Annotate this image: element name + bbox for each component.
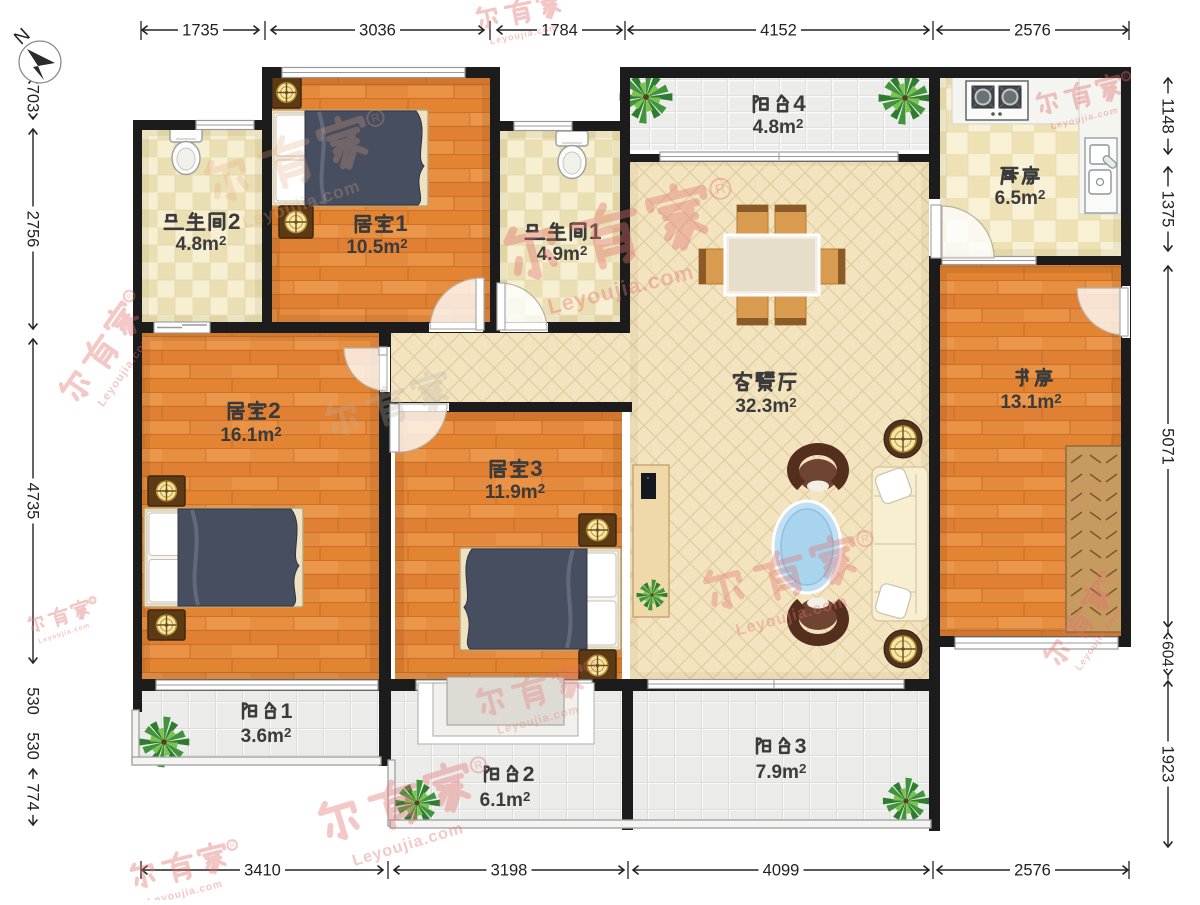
svg-text:774: 774 — [23, 783, 41, 811]
svg-text:2576: 2576 — [1014, 22, 1051, 40]
svg-text:13.1m2: 13.1m2 — [1000, 391, 1061, 413]
svg-text:1923: 1923 — [1158, 746, 1176, 783]
svg-text:2756: 2756 — [23, 211, 41, 248]
svg-text:3036: 3036 — [359, 22, 396, 40]
svg-text:1375: 1375 — [1158, 191, 1176, 228]
svg-text:4.8m2: 4.8m2 — [753, 116, 804, 138]
svg-text:5071: 5071 — [1158, 428, 1176, 465]
svg-text:4735: 4735 — [23, 483, 41, 520]
svg-text:2: 2 — [523, 762, 535, 786]
svg-text:7.9m2: 7.9m2 — [756, 761, 807, 783]
svg-text:32.3m2: 32.3m2 — [735, 395, 796, 417]
svg-text:4: 4 — [793, 91, 806, 116]
svg-text:1: 1 — [281, 699, 293, 723]
svg-text:703: 703 — [23, 85, 41, 113]
svg-text:3: 3 — [795, 734, 807, 758]
svg-text:16.1m2: 16.1m2 — [220, 424, 281, 446]
svg-text:·604·: ·604· — [1159, 636, 1176, 672]
svg-text:3: 3 — [530, 456, 542, 481]
svg-text:3.6m2: 3.6m2 — [241, 725, 292, 747]
svg-text:530: 530 — [23, 687, 41, 715]
svg-text:530: 530 — [23, 732, 41, 760]
svg-text:4152: 4152 — [760, 22, 797, 40]
svg-text:6.1m2: 6.1m2 — [480, 789, 531, 811]
svg-text:1148: 1148 — [1158, 98, 1176, 133]
svg-text:2576: 2576 — [1014, 862, 1051, 880]
svg-text:3198: 3198 — [491, 862, 528, 880]
svg-text:1: 1 — [395, 211, 407, 236]
svg-text:3410: 3410 — [244, 862, 281, 880]
svg-text:1735: 1735 — [182, 22, 219, 40]
svg-text:10.5m2: 10.5m2 — [346, 236, 407, 258]
svg-text:4.8m2: 4.8m2 — [176, 233, 227, 255]
svg-text:6.5m2: 6.5m2 — [995, 187, 1046, 209]
svg-text:4099: 4099 — [763, 862, 800, 880]
svg-text:11.9m2: 11.9m2 — [485, 481, 545, 503]
svg-text:2: 2 — [268, 398, 280, 423]
